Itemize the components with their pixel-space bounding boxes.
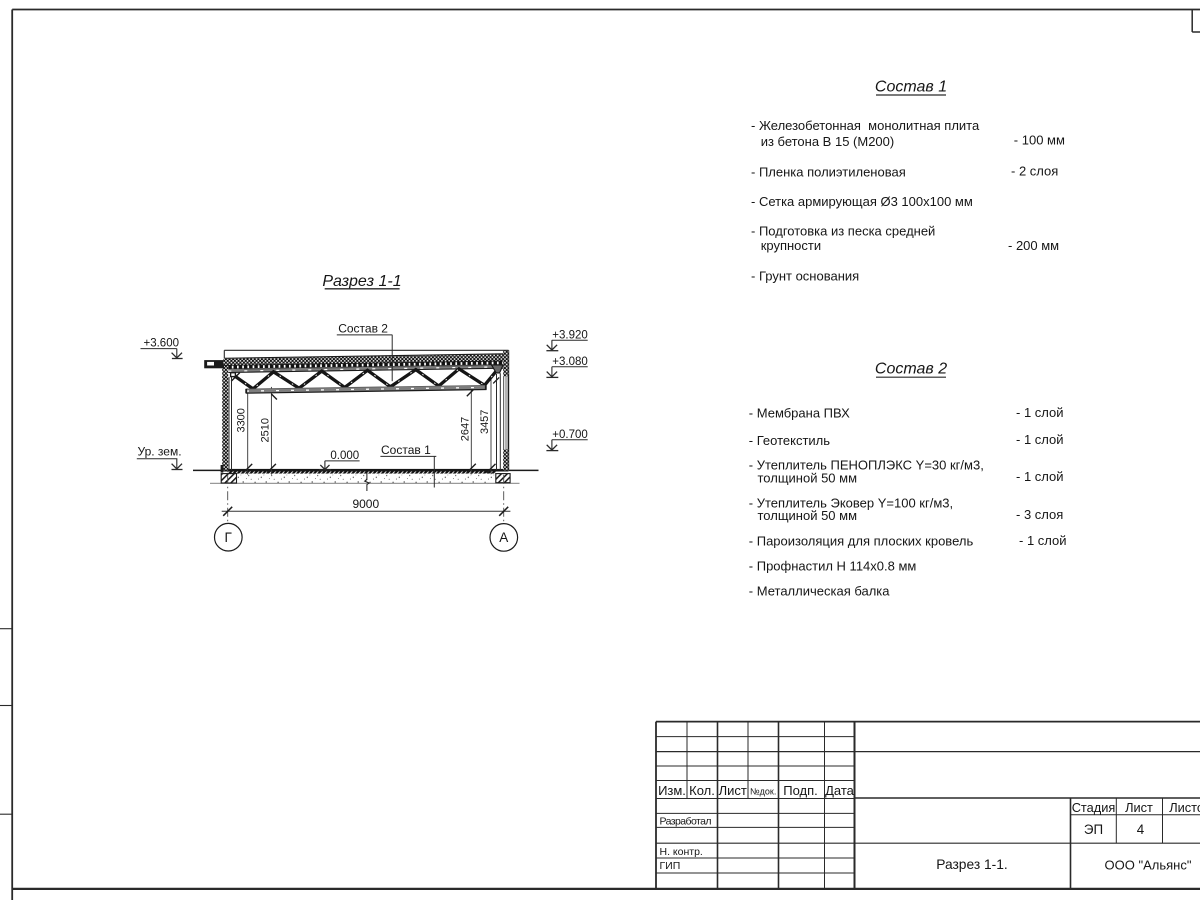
svg-text:Дата: Дата [825, 783, 855, 798]
svg-text:Подп.: Подп. [783, 783, 818, 798]
svg-text:Лист: Лист [1125, 800, 1153, 815]
svg-text:- Мембрана ПВХ: - Мембрана ПВХ [749, 406, 850, 421]
svg-text:- 1 слой: - 1 слой [1019, 533, 1067, 548]
svg-text:3300: 3300 [235, 408, 247, 432]
svg-text:- 200 мм: - 200 мм [1008, 238, 1059, 253]
svg-text:Разрез 1-1: Разрез 1-1 [322, 273, 401, 290]
svg-text:- 1 слой: - 1 слой [1016, 405, 1064, 420]
svg-text:2510: 2510 [260, 418, 272, 442]
svg-text:- Геотекстиль: - Геотекстиль [749, 433, 830, 448]
svg-text:+3.600: +3.600 [144, 337, 180, 349]
svg-text:Г: Г [225, 530, 233, 545]
svg-text:из бетона В 15 (М200): из бетона В 15 (М200) [761, 134, 895, 149]
svg-text:- Грунт основания: - Грунт основания [751, 269, 859, 284]
svg-text:- 3 слоя: - 3 слоя [1016, 507, 1063, 522]
svg-text:- Пленка полиэтиленовая: - Пленка полиэтиленовая [751, 165, 906, 180]
svg-text:- Подготовка из песка средней: - Подготовка из песка средней [751, 224, 935, 239]
svg-text:3457: 3457 [479, 410, 491, 434]
svg-text:Н. контр.: Н. контр. [660, 846, 703, 858]
svg-text:крупности: крупности [761, 238, 821, 253]
svg-text:2647: 2647 [460, 417, 472, 441]
svg-text:4: 4 [1137, 822, 1145, 837]
svg-text:Состав 2: Состав 2 [875, 361, 947, 378]
svg-text:- 100 мм: - 100 мм [1014, 133, 1065, 148]
svg-text:толщиной 50 мм: толщиной 50 мм [758, 508, 858, 523]
svg-text:9000: 9000 [352, 497, 379, 511]
svg-text:- Пароизоляция для плоских кро: - Пароизоляция для плоских кровель [749, 534, 974, 549]
svg-text:Стадия: Стадия [1072, 800, 1116, 815]
svg-text:ООО "Альянс": ООО "Альянс" [1105, 858, 1192, 873]
svg-text:- 1 слой: - 1 слой [1016, 432, 1064, 447]
svg-text:- Профнастил Н 114х0.8 мм: - Профнастил Н 114х0.8 мм [749, 559, 917, 574]
svg-text:+0.700: +0.700 [552, 429, 588, 441]
svg-text:№док.: №док. [750, 786, 776, 796]
svg-text:Лист: Лист [719, 783, 747, 798]
svg-text:Состав 1: Состав 1 [381, 443, 431, 457]
svg-text:- Железобетонная монолитная п: - Железобетонная монолитная плита [751, 118, 980, 133]
svg-text:А: А [499, 530, 508, 545]
svg-text:Кол.: Кол. [689, 783, 715, 798]
svg-text:- Металлическая балка: - Металлическая балка [749, 584, 890, 599]
svg-text:+3.080: +3.080 [552, 356, 588, 368]
svg-text:- 2 слоя: - 2 слоя [1011, 164, 1058, 179]
svg-text:ЭП: ЭП [1084, 822, 1103, 837]
svg-text:Состав 1: Состав 1 [875, 79, 947, 96]
svg-text:Изм.: Изм. [658, 783, 686, 798]
svg-text:Ур. зем.: Ур. зем. [138, 445, 182, 459]
svg-text:ГИП: ГИП [660, 860, 681, 872]
svg-text:0.000: 0.000 [330, 450, 359, 462]
svg-text:толщиной 50 мм: толщиной 50 мм [758, 470, 858, 485]
svg-text:Состав 2: Состав 2 [338, 322, 388, 336]
svg-text:Разрез 1-1.: Разрез 1-1. [936, 857, 1008, 872]
svg-text:- Сетка армирующая Ø3 100х100: - Сетка армирующая Ø3 100х100 мм [751, 194, 973, 209]
svg-text:Листов: Листов [1169, 800, 1200, 815]
svg-text:+3.920: +3.920 [552, 329, 588, 341]
svg-text:- 1 слой: - 1 слой [1016, 469, 1064, 484]
svg-text:Разработал: Разработал [660, 816, 712, 828]
